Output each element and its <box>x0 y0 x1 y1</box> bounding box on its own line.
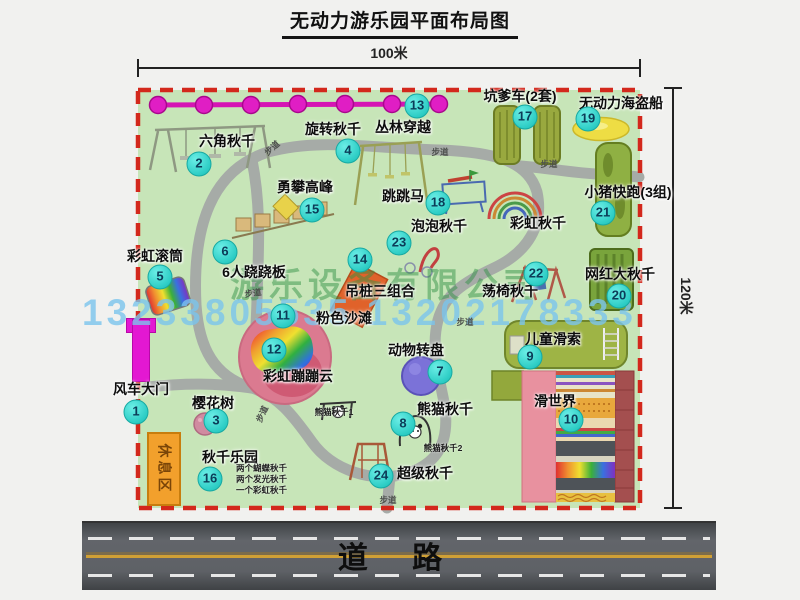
walkway-label: 步道 <box>262 138 283 158</box>
attraction-number-badge: 1 <box>124 400 149 425</box>
walkway-label: 步道 <box>540 158 557 170</box>
attraction-number-badge: 4 <box>336 139 361 164</box>
attraction-number-badge: 14 <box>348 248 373 273</box>
attraction-label: 丛林穿越 <box>375 117 431 137</box>
walkway-label: 步道 <box>244 286 263 300</box>
attraction-label: 六角秋千 <box>199 131 255 151</box>
labels-layer: 风车大门1六角秋千2樱花树3旋转秋千4彩虹滚筒56人跷跷板6动物转盘7熊猫秋千8… <box>0 0 800 600</box>
attraction-number-badge: 22 <box>524 262 549 287</box>
attraction-number-badge: 17 <box>513 105 538 130</box>
attraction-label: 吊桩三组合 <box>345 281 415 301</box>
walkway-label: 步道 <box>379 494 396 506</box>
attraction-number-badge: 5 <box>148 265 173 290</box>
walkway-label: 步道 <box>456 316 473 328</box>
attraction-label: 坑爹车(2套) <box>483 86 556 106</box>
attraction-number-badge: 24 <box>369 464 394 489</box>
attraction-label: 彩虹秋千 <box>510 213 566 233</box>
attraction-number-badge: 10 <box>559 408 584 433</box>
attraction-number-badge: 6 <box>213 240 238 265</box>
attraction-number-badge: 3 <box>204 409 229 434</box>
attraction-label: 熊猫秋千 <box>417 399 473 419</box>
attraction-label: 跳跳马 <box>382 186 424 206</box>
attraction-number-badge: 21 <box>591 201 616 226</box>
attraction-number-badge: 9 <box>518 345 543 370</box>
attraction-label: 泡泡秋千 <box>411 216 467 236</box>
attraction-number-badge: 20 <box>607 284 632 309</box>
attraction-label: 网红大秋千 <box>585 264 655 284</box>
attraction-label: 彩虹滚筒 <box>127 246 183 266</box>
walkway-label: 步道 <box>431 146 448 158</box>
attraction-number-badge: 19 <box>576 107 601 132</box>
attraction-number-badge: 12 <box>262 338 287 363</box>
attraction-label: 6人跷跷板 <box>222 262 286 282</box>
attraction-note-line: 两个发光秋千 <box>236 474 287 485</box>
attraction-note-line: 一个彩虹秋千 <box>236 485 287 496</box>
attraction-label: 超级秋千 <box>397 463 453 483</box>
attraction-label: 旋转秋千 <box>305 119 361 139</box>
attraction-label: 小猪快跑(3组) <box>584 182 671 202</box>
attraction-label: 粉色沙滩 <box>316 308 372 328</box>
attraction-number-badge: 13 <box>405 94 430 119</box>
attraction-number-badge: 2 <box>187 152 212 177</box>
attraction-number-badge: 18 <box>426 191 451 216</box>
attraction-number-badge: 7 <box>428 360 453 385</box>
walkway-label: 步道 <box>253 404 271 424</box>
sub-label: 熊猫秋千1 <box>315 406 354 418</box>
sub-label: 熊猫秋千2 <box>424 442 463 454</box>
attraction-number-badge: 11 <box>271 304 296 329</box>
attraction-number-badge: 8 <box>391 412 416 437</box>
attraction-notes: 两个蝴蝶秋千两个发光秋千一个彩虹秋千 <box>236 463 287 496</box>
attraction-label: 彩虹蹦蹦云 <box>263 366 333 386</box>
attraction-label: 勇攀高峰 <box>277 177 333 197</box>
attraction-label: 动物转盘 <box>388 340 444 360</box>
attraction-number-badge: 23 <box>387 231 412 256</box>
attraction-note-line: 两个蝴蝶秋千 <box>236 463 287 474</box>
attraction-number-badge: 15 <box>300 198 325 223</box>
attraction-label: 风车大门 <box>113 379 169 399</box>
attraction-number-badge: 16 <box>198 467 223 492</box>
playground-map-figure: 无动力游乐园平面布局图 100米 120米 <box>0 0 800 600</box>
